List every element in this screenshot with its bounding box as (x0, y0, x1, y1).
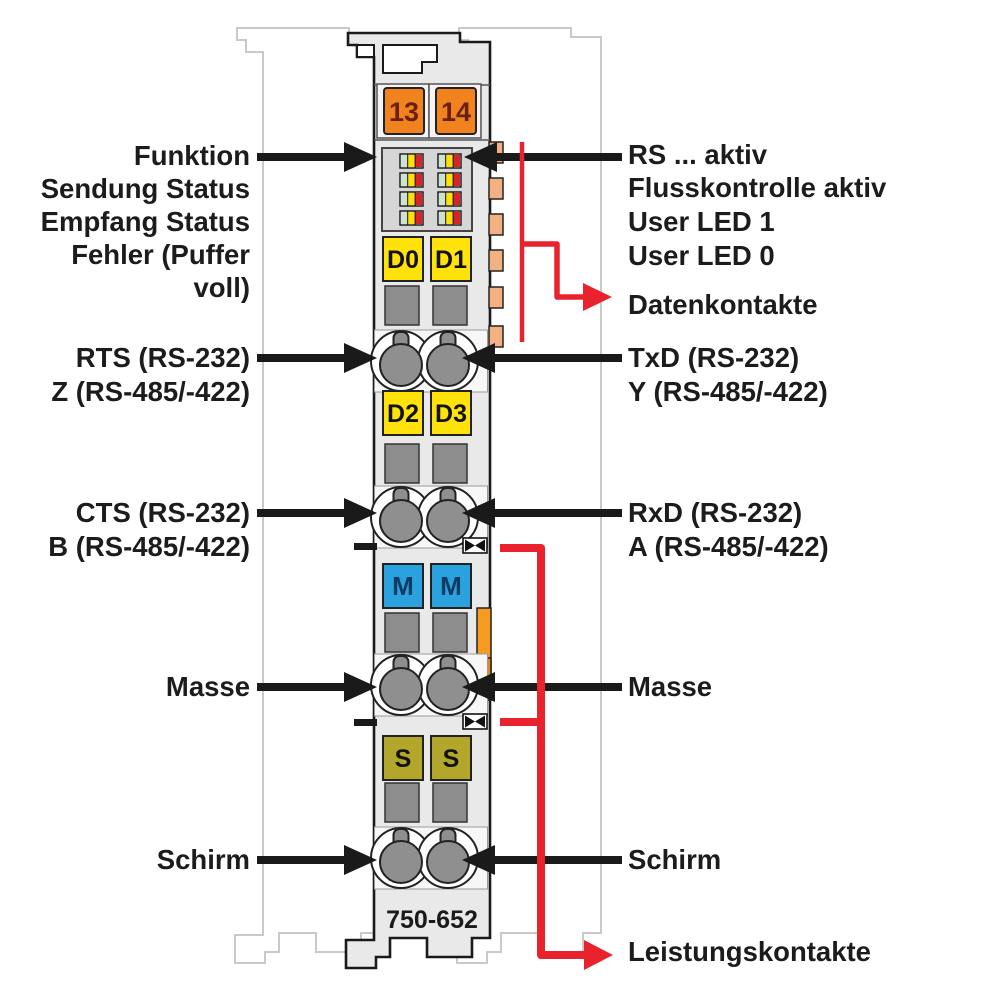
led-sendung-status (400, 173, 423, 187)
terminal-assignment-diagram: 13 14 D0 D1 D2 D3 M M (0, 0, 1000, 1000)
led-user-led-1 (438, 192, 461, 206)
terminal-s2-label: S (443, 745, 460, 773)
red-arrow-head (583, 283, 612, 311)
label-rxd: RxD (RS-232) (628, 497, 802, 528)
tool-slot (433, 444, 467, 483)
terminal-m2-label: M (440, 571, 462, 601)
terminal-14-label: 14 (441, 97, 471, 127)
label-voll: voll) (193, 272, 250, 303)
label-schirm-left: Schirm (157, 844, 250, 875)
label-datenkontakte: Datenkontakte (628, 289, 818, 320)
left-label-column: Funktion Sendung Status Empfang Status F… (41, 140, 251, 875)
data-contacts-annotation (522, 142, 612, 342)
red-arrow-head (584, 940, 613, 970)
label-flusskontrolle: Flusskontrolle aktiv (628, 172, 887, 203)
terminal-m1-label: M (392, 571, 414, 601)
label-user-led-0: User LED 0 (628, 240, 775, 271)
led-empfang-status (400, 192, 423, 206)
tool-slot (385, 613, 419, 652)
tool-slot (385, 444, 419, 483)
power-jumper-recess-mark (354, 543, 377, 550)
terminal-d0-label: D0 (387, 246, 419, 274)
diagram-svg: 13 14 D0 D1 D2 D3 M M (0, 0, 1000, 1000)
label-masse-left: Masse (166, 671, 250, 702)
led-rs-aktiv (438, 154, 461, 168)
adjacent-module-silhouette-left (235, 28, 379, 963)
terminal-d1-label: D1 (435, 246, 467, 274)
label-a: A (RS-485/-422) (628, 531, 829, 562)
label-schirm-right: Schirm (628, 844, 721, 875)
tool-slot (433, 783, 467, 822)
led-user-led-0 (438, 211, 461, 225)
label-empfang-status: Empfang Status (41, 206, 250, 237)
data-contact-tab (489, 326, 503, 347)
label-rs-aktiv: RS ... aktiv (628, 139, 768, 170)
data-contact-tab (489, 250, 503, 271)
label-b: B (RS-485/-422) (48, 531, 250, 562)
power-jumper-recess-mark (354, 719, 377, 726)
din-rail-slot (357, 45, 374, 57)
label-sendung-status: Sendung Status (41, 173, 250, 204)
annotation-arrows-left (257, 142, 377, 875)
label-cts: CTS (RS-232) (76, 497, 250, 528)
label-txd: TxD (RS-232) (628, 342, 799, 373)
terminal-d2-label: D2 (387, 400, 419, 428)
label-masse-right: Masse (628, 671, 712, 702)
part-number: 750-652 (386, 906, 478, 934)
label-rts: RTS (RS-232) (76, 342, 250, 373)
data-contact-tab (489, 178, 503, 199)
power-jumper-contact-icon (463, 538, 487, 553)
power-jumper-contact-icon (463, 714, 487, 729)
tool-slot (385, 783, 419, 822)
led-fehler (400, 211, 423, 225)
right-label-column: RS ... aktiv Flusskontrolle aktiv User L… (628, 139, 887, 967)
led-function (400, 154, 423, 168)
data-contact-tab (489, 287, 503, 308)
label-y: Y (RS-485/-422) (628, 376, 828, 407)
label-fehler-puffer: Fehler (Puffer (71, 239, 250, 270)
label-leistungskontakte: Leistungskontakte (628, 936, 871, 967)
data-contact-tab (489, 214, 503, 235)
label-z: Z (RS-485/-422) (51, 376, 250, 407)
tool-slot (433, 613, 467, 652)
tool-slot (433, 286, 467, 325)
terminal-s1-label: S (395, 745, 412, 773)
power-contacts-annotation (500, 548, 613, 970)
terminal-13-label: 13 (389, 97, 419, 127)
tool-slot (385, 286, 419, 325)
label-funktion: Funktion (134, 140, 250, 171)
terminal-d3-label: D3 (435, 400, 467, 428)
led-flusskontrolle (438, 173, 461, 187)
label-user-led-1: User LED 1 (628, 206, 775, 237)
